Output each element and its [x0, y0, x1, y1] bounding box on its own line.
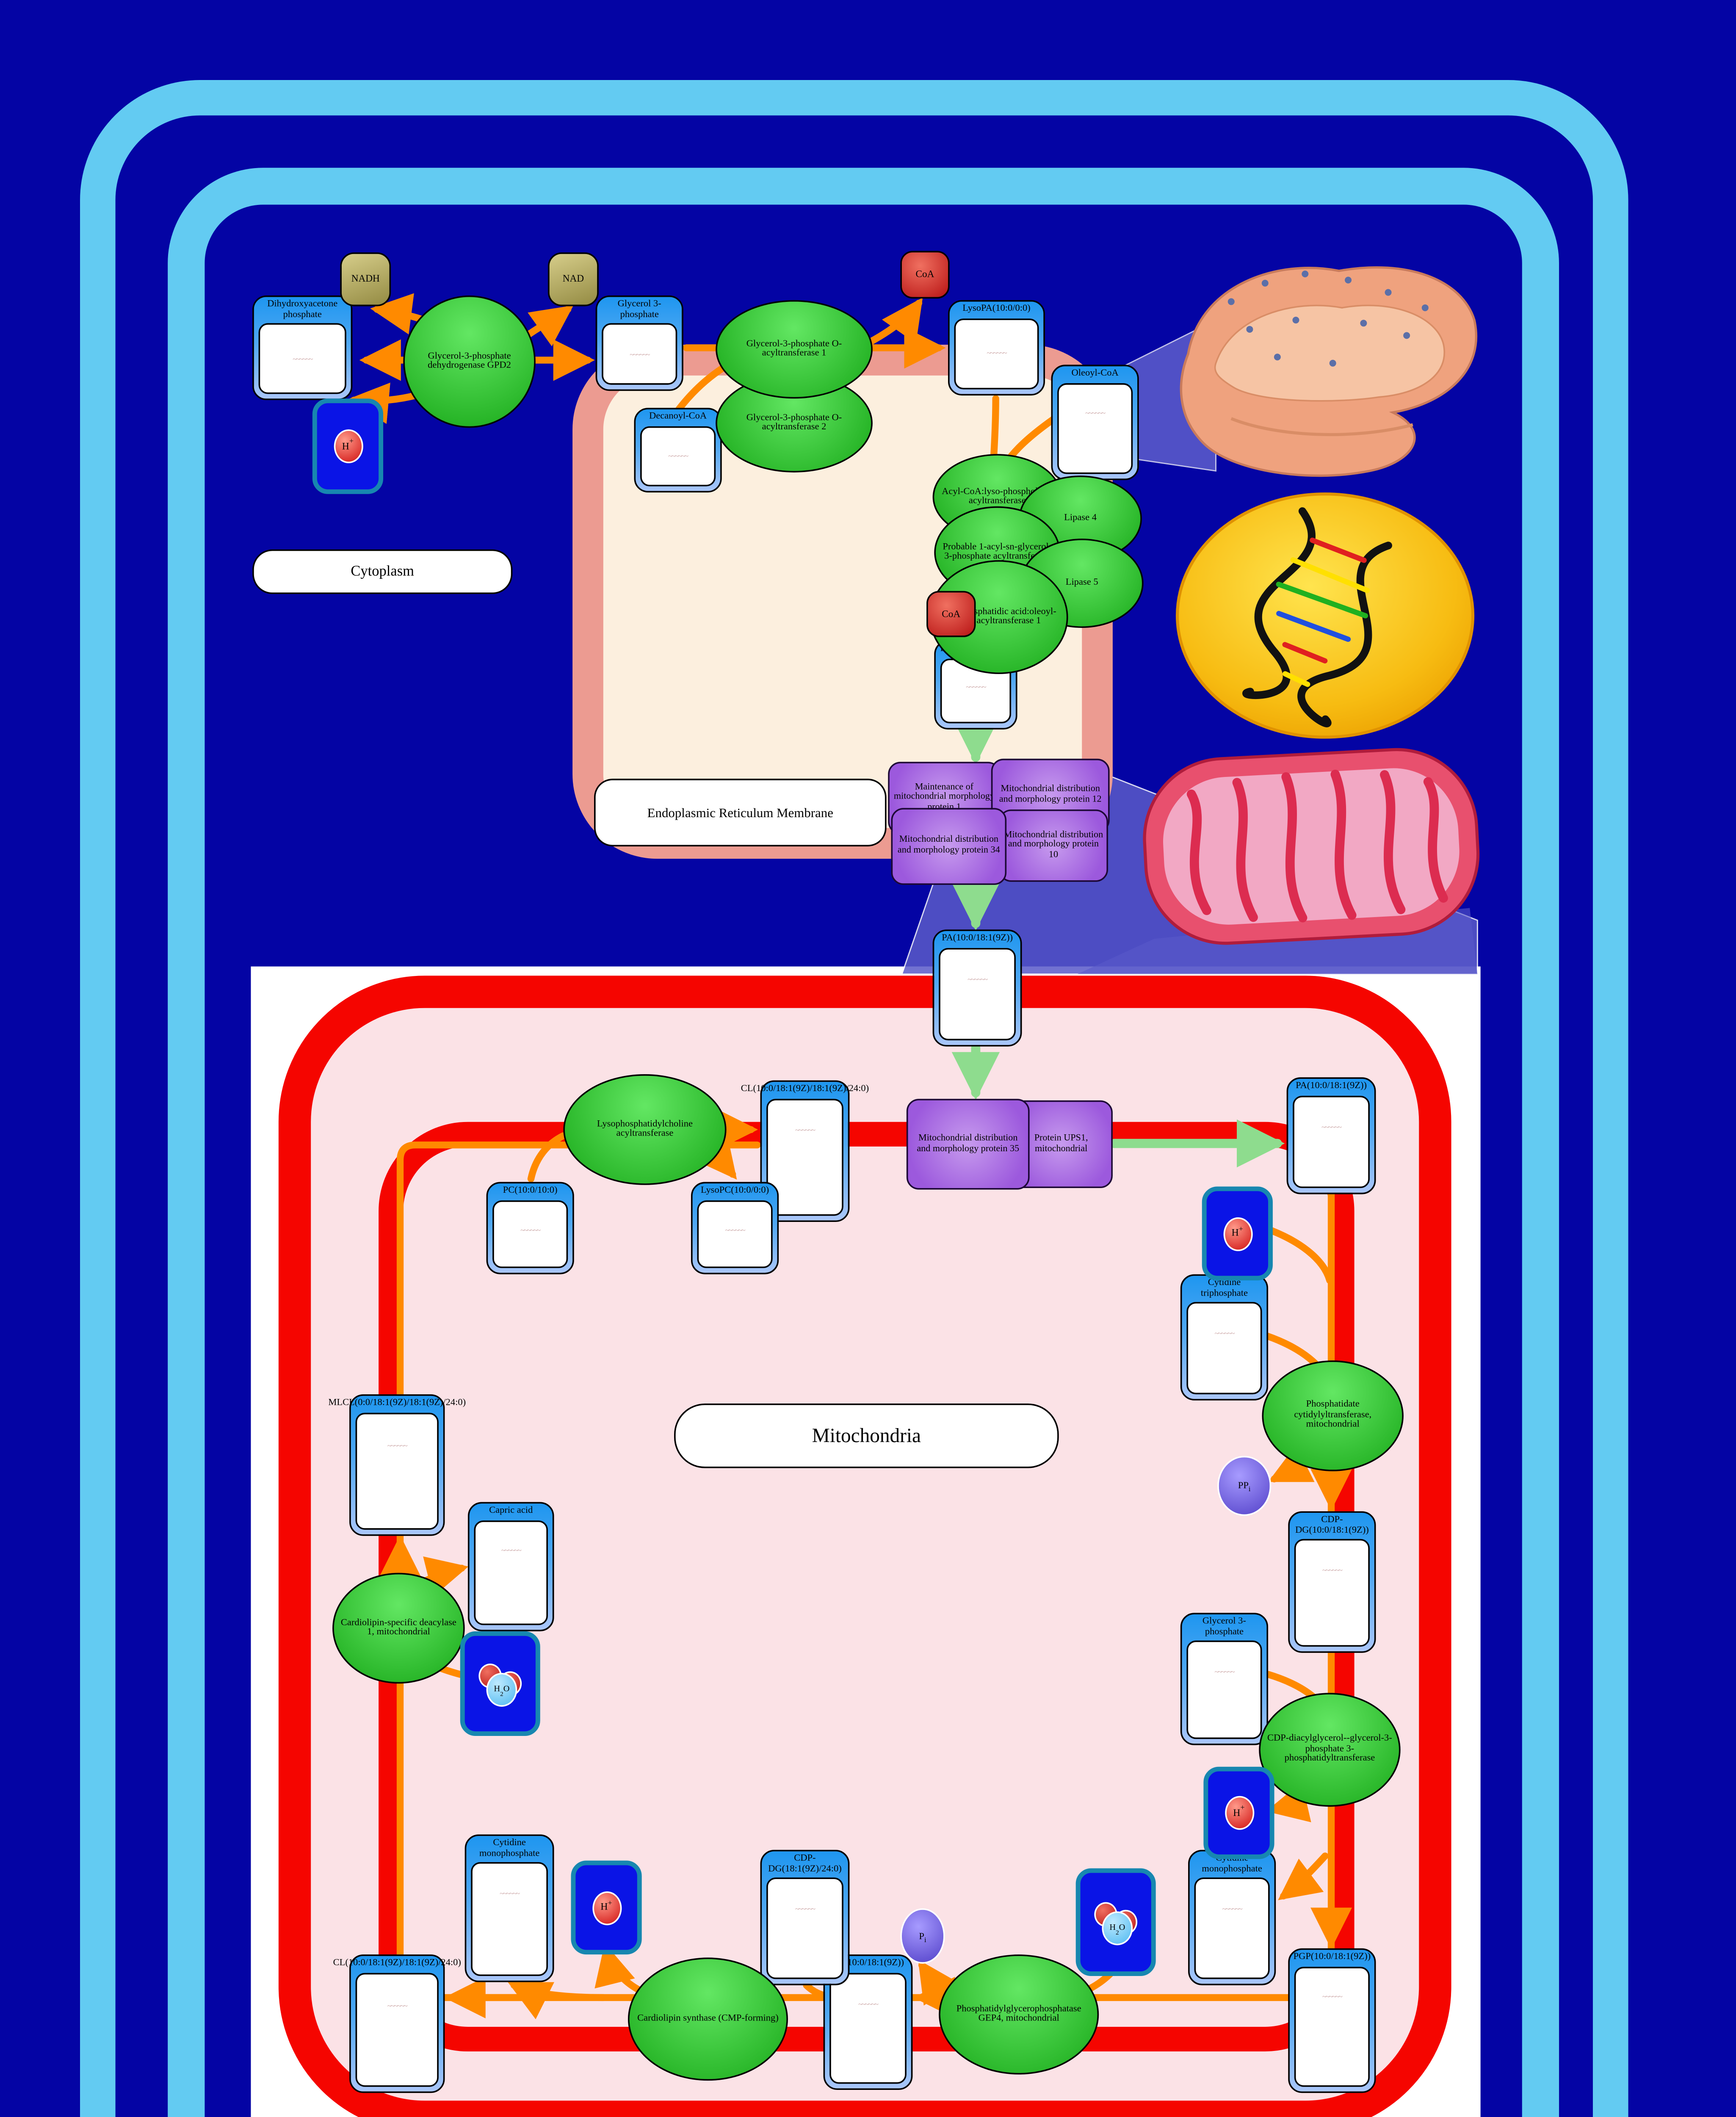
- node-oleoyl-coa[interactable]: Oleoyl-CoA: [1051, 365, 1139, 480]
- molecule-structure: [356, 1972, 439, 2087]
- enzyme-cdp-dag-g3p-phosphatidyltransferase[interactable]: CDP-diacylglycerol--glycerol-3-phosphate…: [1259, 1693, 1400, 1807]
- badge-h-plus-cytosol[interactable]: H+: [312, 398, 383, 494]
- molecule-structure: [829, 1972, 907, 2084]
- h-plus-icon: H+: [1224, 1796, 1253, 1830]
- molecule-structure: [766, 1877, 843, 1979]
- protein-mdm10[interactable]: Mitochondrial distribution and morpholog…: [999, 810, 1108, 882]
- node-pa-inner-membrane[interactable]: PA(10:0/18:1(9Z)): [1287, 1077, 1376, 1194]
- molecule-structure: [1294, 1539, 1370, 1647]
- node-label: PA(10:0/18:1(9Z)): [934, 931, 1020, 946]
- node-glycerol-3-phosphate-cytosol[interactable]: Glycerol 3-phosphate: [596, 296, 683, 391]
- node-cl-bottom[interactable]: CL(10:0/18:1(9Z)/18:1(9Z)/24:0): [349, 1954, 445, 2093]
- h-plus-icon: H+: [333, 429, 362, 463]
- node-cdp-dg-right[interactable]: CDP-DG(10:0/18:1(9Z)): [1288, 1511, 1376, 1653]
- badge-h2o-left[interactable]: H2O: [460, 1631, 540, 1736]
- protein-mdm34[interactable]: Mitochondrial distribution and morpholog…: [891, 808, 1007, 885]
- molecule-structure: [640, 426, 716, 486]
- molecule-structure: [474, 1520, 548, 1625]
- molecule-structure: [697, 1199, 773, 1268]
- molecule-structure: [1186, 1641, 1262, 1739]
- node-label: CDP-DG(18:1(9Z)/24:0): [762, 1852, 848, 1876]
- protein-mdm35[interactable]: Mitochondrial distribution and morpholog…: [907, 1099, 1030, 1189]
- molecule-structure: [356, 1412, 439, 1530]
- node-label: Oleoyl-CoA: [1053, 366, 1137, 381]
- enzyme-gpat1[interactable]: Glycerol-3-phosphate O-acyltransferase 1: [716, 300, 873, 399]
- node-pgp[interactable]: PGP(10:0/18:1(9Z)): [1288, 1948, 1376, 2093]
- h-plus-icon: H+: [592, 1890, 621, 1924]
- node-glycerol-3-phosphate-mito[interactable]: Glycerol 3-phosphate: [1180, 1613, 1268, 1745]
- node-cmp-left[interactable]: Cytidine monophosphate: [465, 1835, 554, 1982]
- enzyme-cld1[interactable]: Cardiolipin-specific deacylase 1, mitoch…: [332, 1573, 465, 1684]
- water-icon: H2O: [477, 1664, 523, 1704]
- node-label: Capric acid: [470, 1503, 553, 1518]
- badge-pi[interactable]: Pi: [900, 1908, 945, 1964]
- node-lysopc[interactable]: LysoPC(10:0/0:0): [691, 1182, 779, 1274]
- node-label: LysoPA(10:0/0:0): [950, 301, 1044, 316]
- water-icon: H2O: [1093, 1902, 1139, 1943]
- badge-h-plus-right-bottom[interactable]: H+: [1203, 1767, 1274, 1859]
- node-label: PC(10:0/10:0): [488, 1183, 572, 1198]
- molecule-structure: [259, 323, 346, 394]
- node-label: Decanoyl-CoA: [636, 409, 720, 424]
- node-label: MLCL(0:0/18:1(9Z)/18:1(9Z)/24:0): [351, 1396, 443, 1411]
- molecule-structure: [471, 1862, 548, 1976]
- node-capric-acid[interactable]: Capric acid: [468, 1502, 554, 1631]
- label-cytoplasm: Cytoplasm: [252, 550, 512, 594]
- node-label: Glycerol 3-phosphate: [597, 297, 682, 322]
- enzyme-gep4[interactable]: Phosphatidylglycerophosphatase GEP4, mit…: [939, 1954, 1099, 2075]
- molecule-structure: [954, 318, 1039, 390]
- node-label: LysoPC(10:0/0:0): [693, 1183, 777, 1198]
- molecule-structure: [1293, 1095, 1370, 1188]
- molecule-structure: [1057, 382, 1133, 474]
- enzyme-cardiolipin-synthase[interactable]: Cardiolipin synthase (CMP-forming): [628, 1957, 788, 2081]
- badge-h-plus-bottom-left[interactable]: H+: [571, 1860, 641, 1954]
- node-label: CDP-DG(10:0/18:1(9Z)): [1290, 1513, 1374, 1537]
- node-label: CL(10:0/18:1(9Z)/18:1(9Z)/24:0): [762, 1082, 848, 1097]
- node-pa-outer-membrane[interactable]: PA(10:0/18:1(9Z)): [933, 929, 1022, 1046]
- badge-coa-top[interactable]: CoA: [900, 251, 949, 298]
- molecule-structure: [1186, 1302, 1262, 1394]
- enzyme-gpd2[interactable]: Glycerol-3-phosphate dehydrogenase GPD2: [403, 296, 536, 428]
- molecule-structure: [492, 1199, 568, 1268]
- molecule-structure: [1294, 1966, 1370, 2087]
- badge-nad[interactable]: NAD: [548, 252, 599, 306]
- molecule-structure: [602, 323, 677, 384]
- badge-h2o-bottom[interactable]: H2O: [1076, 1868, 1156, 1976]
- molecule-structure: [939, 947, 1016, 1040]
- molecule-structure: [1194, 1877, 1270, 1979]
- node-dhap[interactable]: Dihydroxyacetone phosphate: [252, 296, 352, 400]
- badge-ppi[interactable]: PPi: [1217, 1456, 1271, 1516]
- h-plus-icon: H+: [1223, 1216, 1252, 1250]
- badge-h-plus-right-top[interactable]: H+: [1202, 1186, 1273, 1280]
- node-pc[interactable]: PC(10:0/10:0): [487, 1182, 574, 1274]
- node-mlcl[interactable]: MLCL(0:0/18:1(9Z)/18:1(9Z)/24:0): [349, 1394, 445, 1536]
- badge-nadh[interactable]: NADH: [340, 252, 391, 306]
- label-mitochondria: Mitochondria: [674, 1404, 1059, 1468]
- enzyme-phosphatidate-cytidylyltransferase[interactable]: Phosphatidate cytidylyltransferase, mito…: [1262, 1360, 1403, 1471]
- node-label: Dihydroxyacetone phosphate: [254, 297, 351, 322]
- node-label: Glycerol 3-phosphate: [1182, 1614, 1266, 1639]
- badge-coa-mid[interactable]: CoA: [926, 591, 976, 637]
- node-ctp[interactable]: Cytidine triphosphate: [1180, 1274, 1268, 1401]
- node-label: PA(10:0/18:1(9Z)): [1288, 1079, 1374, 1094]
- node-label: CL(10:0/18:1(9Z)/18:1(9Z)/24:0): [351, 1956, 443, 1971]
- pathway-diagram: Dihydroxyacetone phosphate Glycerol 3-ph…: [0, 0, 1736, 2117]
- node-lysopa[interactable]: LysoPA(10:0/0:0): [948, 300, 1045, 395]
- node-label: PGP(10:0/18:1(9Z)): [1290, 1950, 1374, 1965]
- label-er-membrane: Endoplasmic Reticulum Membrane: [594, 779, 887, 846]
- node-decanoyl-coa[interactable]: Decanoyl-CoA: [634, 408, 722, 492]
- enzyme-lpc-acyltransferase[interactable]: Lysophosphatidylcholine acyltransferase: [563, 1074, 726, 1185]
- node-label: Cytidine monophosphate: [466, 1836, 553, 1860]
- node-cdp-dg-bottom[interactable]: CDP-DG(18:1(9Z)/24:0): [760, 1850, 850, 1985]
- node-cmp-right[interactable]: Cytidine monophosphate: [1188, 1850, 1276, 1985]
